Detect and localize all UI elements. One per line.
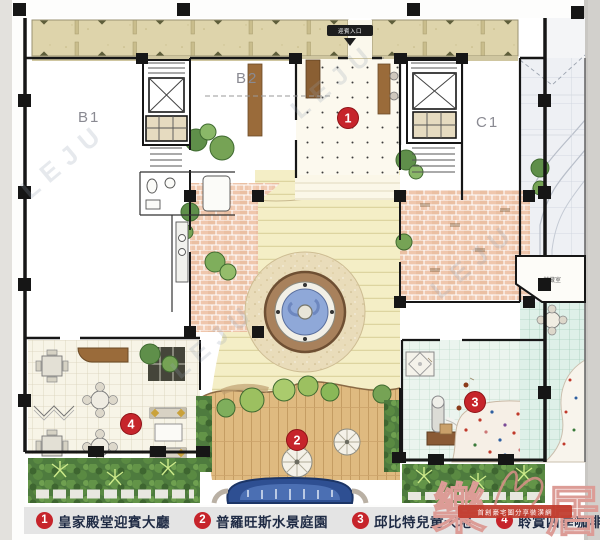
legend-item-4: 4 聆賞四季咖啡小館 bbox=[496, 511, 600, 531]
legend-number-badge-4: 4 bbox=[496, 512, 513, 529]
legend-label-4: 聆賞四季咖啡小館 bbox=[518, 511, 600, 531]
reception-desk bbox=[378, 64, 390, 114]
unit-label-b1: B1 bbox=[78, 109, 100, 126]
legend-number-badge-3: 3 bbox=[352, 512, 369, 529]
patio-right-brick bbox=[400, 190, 530, 300]
svg-text:1: 1 bbox=[345, 112, 352, 126]
svg-text:4: 4 bbox=[128, 418, 135, 432]
right-terrace bbox=[520, 302, 585, 462]
unit-label-c1: C1 bbox=[476, 114, 499, 131]
svg-text:2: 2 bbox=[294, 434, 301, 448]
legend-label-1: 皇家殿堂迎賓大廳 bbox=[58, 511, 170, 531]
svg-text:3: 3 bbox=[472, 396, 479, 410]
fountain bbox=[265, 272, 345, 352]
unit-label-b2: B2 bbox=[236, 70, 258, 87]
plan-marker-2: 2 bbox=[287, 430, 308, 451]
legend-bar: 1 皇家殿堂迎賓大廳 2 普羅旺斯水景庭園 3 邱比特兒童天地 4 聆賞四季咖啡… bbox=[24, 507, 574, 534]
legend-item-3: 3 邱比特兒童天地 bbox=[352, 511, 472, 531]
legend-label-2: 普羅旺斯水景庭園 bbox=[216, 511, 328, 531]
floorplan-drawing: 迎賓入口 bbox=[0, 0, 600, 540]
parasol-table bbox=[334, 429, 360, 455]
legend-item-2: 2 普羅旺斯水景庭園 bbox=[194, 511, 328, 531]
parasol-table bbox=[282, 447, 312, 477]
entrance-label: 迎賓入口 bbox=[338, 27, 362, 35]
cafe-counter bbox=[78, 348, 128, 362]
plan-marker-1: 1 bbox=[338, 108, 359, 129]
plan-marker-4: 4 bbox=[121, 414, 142, 435]
legend-number-badge-2: 2 bbox=[194, 512, 211, 529]
plan-marker-3: 3 bbox=[465, 392, 486, 413]
legend-label-3: 邱比特兒童天地 bbox=[374, 511, 472, 531]
legend-number-badge-1: 1 bbox=[36, 512, 53, 529]
legend-item-1: 1 皇家殿堂迎賓大廳 bbox=[36, 511, 170, 531]
